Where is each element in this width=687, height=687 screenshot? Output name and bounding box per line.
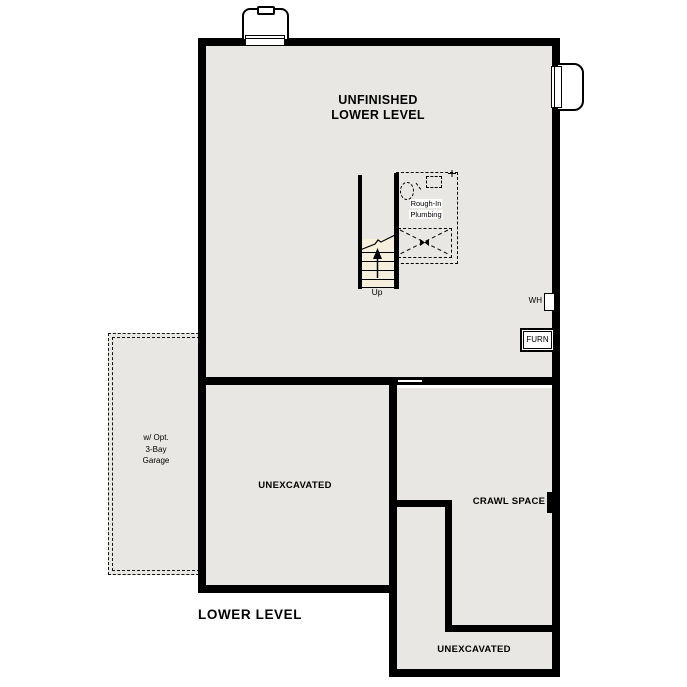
floor-plan: FURN	[0, 0, 687, 687]
sink-icon	[426, 176, 442, 188]
water-heater-label: WH	[518, 296, 542, 305]
crawl-stub-wall	[389, 500, 452, 507]
garage-label-line1: w/ Opt.	[126, 432, 186, 444]
main-room-label-line1: UNFINISHED	[298, 93, 458, 108]
unexcavated-left-bottom-wall	[198, 585, 397, 593]
toilet-icon	[400, 182, 414, 200]
crawl-bottom-wall	[445, 625, 560, 632]
sheet-title: LOWER LEVEL	[198, 607, 302, 622]
tub-icon	[398, 228, 452, 258]
mid-divider-wall	[198, 377, 560, 385]
left-wall	[198, 38, 206, 593]
divider-window-seg	[398, 380, 422, 382]
water-heater-box	[544, 293, 555, 311]
up-label: Up	[366, 287, 388, 297]
window-well-top-notch	[257, 6, 275, 15]
divider-ledge-line	[395, 385, 552, 388]
right-wall	[552, 38, 560, 677]
furnace-label: FURN	[522, 335, 553, 344]
stair-treads-fill	[362, 239, 394, 288]
unexcavated-left-label: UNEXCAVATED	[225, 480, 365, 491]
stair-left-wall	[358, 175, 362, 289]
window-right-icon	[551, 66, 562, 108]
garage-label-line3: Garage	[126, 455, 186, 467]
unexcavated-bottom-label: UNEXCAVATED	[404, 644, 544, 655]
furnace-box: FURN	[520, 328, 555, 352]
central-vertical-wall	[389, 383, 397, 677]
garage-label: w/ Opt. 3-Bay Garage	[126, 432, 186, 467]
rough-in-plumbing-label: Rough-In Plumbing	[398, 199, 454, 220]
window-top-icon	[245, 35, 285, 46]
crawl-space-label: CRAWL SPACE	[449, 496, 569, 507]
main-room-label-line2: LOWER LEVEL	[298, 108, 458, 123]
bottom-wall	[389, 669, 560, 677]
crawl-left-wall	[445, 500, 452, 632]
plumbing-label-line1: Rough-In	[410, 199, 443, 208]
plumbing-label-line2: Plumbing	[409, 210, 442, 219]
garage-label-line2: 3-Bay	[126, 444, 186, 456]
main-room-label: UNFINISHED LOWER LEVEL	[298, 93, 458, 123]
